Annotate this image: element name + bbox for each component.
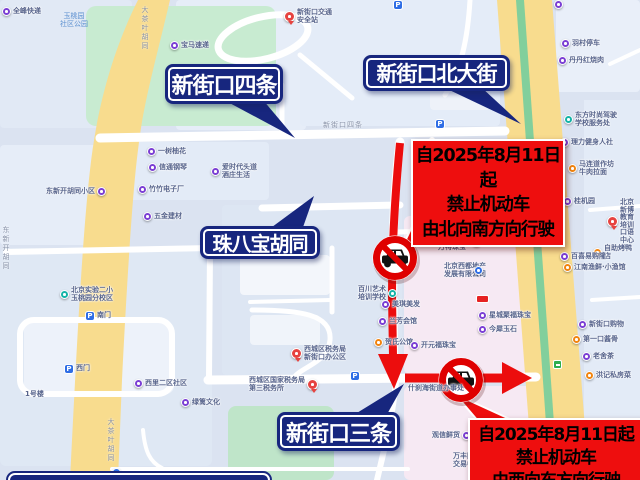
poi-pin-icon[interactable]: [138, 185, 147, 194]
sign-xinjiekou-4th: 新街口四条: [165, 64, 283, 104]
poi-pin-icon[interactable]: [147, 147, 156, 156]
poi-label: 美琪美发: [392, 301, 420, 309]
poi-label: 东新开胡同小区: [46, 188, 95, 196]
poi-label: 第一口酱骨: [583, 336, 618, 344]
poi-marker[interactable]: 一树柚花: [147, 147, 186, 156]
poi-marker[interactable]: 桂机园: [563, 197, 595, 206]
poi-label: 江南渔鲜·小渔馆: [574, 264, 626, 272]
poi-marker[interactable]: 全峰快递: [2, 7, 41, 16]
poi-label: 东方时尚驾驶 学校服务处: [575, 112, 617, 127]
poi-pin-icon[interactable]: [291, 348, 302, 359]
poi-label: 爱时代头道 酒庄生活: [222, 164, 257, 179]
poi-pin-icon[interactable]: [572, 335, 581, 344]
poi-marker[interactable]: 1号楼: [25, 391, 44, 399]
poi-marker[interactable]: 什刹海街道办事处: [408, 385, 464, 393]
bus-stop-icon[interactable]: [553, 360, 562, 369]
poi-label: 西城区国家税务局 第三税务所: [249, 377, 305, 392]
poi-marker[interactable]: 爱时代头道 酒庄生活: [211, 164, 257, 179]
poi-pin-icon[interactable]: [582, 352, 591, 361]
poi-label: 百川艺术 培训学校: [358, 286, 386, 301]
poi-label: 西门: [76, 365, 90, 373]
street-xinjiekou-4th: [100, 131, 505, 138]
poi-marker[interactable]: 百喜易购隆: [560, 252, 606, 261]
poi-marker[interactable]: 西城区国家税务局 第三税务所: [249, 377, 318, 392]
poi-marker[interactable]: 西城区税务局 新街口办公区: [291, 346, 346, 361]
map-screen[interactable]: 玉桃园 社区公园 新街口四条 新街口北大街 珠八宝胡同 新街口三条 自2025年…: [0, 0, 640, 480]
poi-marker[interactable]: 兰芳会馆: [378, 317, 417, 326]
poi-marker[interactable]: P南门: [85, 311, 111, 321]
poi-pin-icon[interactable]: [388, 289, 397, 298]
poi-label: 宝马速递: [181, 42, 209, 50]
poi-label: 桂机园: [574, 198, 595, 206]
poi-label: 西城区税务局 新街口办公区: [304, 346, 346, 361]
poi-marker[interactable]: 今犀玉石: [478, 325, 517, 334]
poi-pin-icon[interactable]: [2, 7, 11, 16]
poi-pin-icon[interactable]: [560, 252, 569, 261]
notice-line: 由西向东方向行驶: [471, 470, 640, 480]
poi-pin-icon[interactable]: [568, 164, 577, 173]
poi-pin-icon[interactable]: [134, 379, 143, 388]
poi-label: 贺氏公馆: [385, 339, 413, 347]
poi-label: 北京新博教育 培训口语中心: [620, 199, 635, 244]
parking-icon[interactable]: P: [64, 364, 74, 374]
poi-marker[interactable]: 新街口购物: [578, 320, 624, 329]
poi-label: 1号楼: [25, 391, 44, 399]
notice-line: 禁止机动车: [414, 193, 562, 218]
poi-marker[interactable]: 竹竹电子厂: [138, 185, 184, 194]
poi-pin-icon[interactable]: [211, 167, 220, 176]
street-zhubabao-hutong: [262, 205, 400, 208]
poi-pin-icon[interactable]: [307, 379, 318, 390]
sign-xinjiekou-3rd: 新街口三条: [277, 412, 400, 451]
poi-marker[interactable]: 新街口交通 安全站: [284, 9, 332, 24]
poi-label: 老舍茶: [593, 353, 614, 361]
poi-pin-icon[interactable]: [476, 295, 489, 303]
street-name-label: 新街口四条: [323, 120, 363, 130]
poi-pin-icon[interactable]: [284, 11, 295, 22]
poi-marker[interactable]: 马连道作坊 牛肉拉面: [568, 161, 614, 176]
poi-label: 北京实验二小 玉桃园分校区: [71, 287, 113, 302]
poi-label: 洪记私房菜: [596, 372, 631, 380]
poi-marker[interactable]: 第一口酱骨: [572, 335, 618, 344]
poi-pin-icon[interactable]: [381, 300, 390, 309]
poi-pin-icon[interactable]: [561, 39, 570, 48]
poi-label: 南门: [97, 312, 111, 320]
poi-marker[interactable]: 丹丹红烧肉: [558, 56, 604, 65]
poi-marker[interactable]: 羽村停车: [561, 39, 600, 48]
street-sign-cutoff: [6, 471, 272, 480]
poi-pin-icon[interactable]: [554, 0, 563, 9]
poi-marker[interactable]: 东方时尚驾驶 学校服务处: [564, 112, 617, 127]
poi-label: 新街口交通 安全站: [297, 9, 332, 24]
poi-pin-icon[interactable]: [558, 56, 567, 65]
poi-pin-icon[interactable]: [585, 371, 594, 380]
poi-label: 星城聚福珠宝: [489, 312, 531, 320]
poi-marker[interactable]: 开元福珠宝: [410, 341, 456, 350]
poi-marker[interactable]: 宝马速递: [170, 41, 209, 50]
notice-no-vehicles-west-east: 自2025年8月11日起 禁止机动车 由西向东方向行驶: [468, 418, 640, 480]
poi-label: 全峰快递: [13, 8, 41, 16]
poi-marker[interactable]: P: [435, 119, 445, 129]
poi-pin-icon[interactable]: [378, 317, 387, 326]
poi-label: 西里二区社区: [145, 380, 187, 388]
poi-marker[interactable]: 五金建材: [143, 212, 182, 221]
parking-icon[interactable]: P: [435, 119, 445, 129]
poi-pin-icon[interactable]: [374, 338, 383, 347]
parking-icon[interactable]: P: [350, 371, 360, 381]
poi-marker[interactable]: 星城聚福珠宝: [478, 311, 531, 320]
parking-icon[interactable]: P: [393, 0, 403, 10]
poi-label: 百喜易购隆: [571, 253, 606, 261]
poi-label: 马连道作坊 牛肉拉面: [579, 161, 614, 176]
poi-marker[interactable]: 东新开胡同小区: [46, 187, 106, 196]
poi-marker[interactable]: 百川艺术 培训学校: [358, 286, 397, 301]
poi-label: 信通钢琴: [159, 164, 187, 172]
poi-pin-icon[interactable]: [478, 311, 487, 320]
poi-pin-icon[interactable]: [410, 341, 419, 350]
poi-marker[interactable]: P西门: [64, 364, 90, 374]
parking-icon[interactable]: P: [85, 311, 95, 321]
poi-marker[interactable]: 北京新博教育 培训口语中心: [607, 199, 635, 244]
poi-marker[interactable]: 美琪美发: [381, 300, 420, 309]
sign-xinjiekou-north-street: 新街口北大街: [363, 55, 510, 91]
poi-pin-icon[interactable]: [478, 325, 487, 334]
poi-marker[interactable]: 绿篱文化: [181, 398, 220, 407]
street-name-label: 东新开胡同: [1, 226, 11, 271]
poi-label: 兰芳会馆: [389, 318, 417, 326]
poi-pin-icon[interactable]: [148, 163, 157, 172]
poi-label: 观信鲜货: [432, 432, 460, 440]
poi-marker[interactable]: 洪记私房菜: [585, 371, 631, 380]
poi-marker[interactable]: 老舍茶: [582, 352, 614, 361]
poi-label: 绿篱文化: [192, 399, 220, 407]
notice-no-vehicles-north-south: 自2025年8月11日起 禁止机动车 由北向南方向行驶: [411, 139, 565, 247]
poi-marker[interactable]: 信通钢琴: [148, 163, 187, 172]
poi-marker[interactable]: 贺氏公馆: [374, 338, 413, 347]
poi-label: 理力健身人社: [571, 139, 613, 147]
street-name-label: 大茶叶胡同: [106, 418, 116, 463]
poi-label: 新街口购物: [589, 321, 624, 329]
poi-marker[interactable]: [554, 0, 563, 9]
notice-line: 自2025年8月11日起: [414, 144, 562, 193]
notice-line: 由北向南方向行驶: [414, 218, 562, 243]
poi-marker[interactable]: P: [393, 0, 403, 10]
notice-line: 禁止机动车: [471, 447, 640, 470]
poi-label: 竹竹电子厂: [149, 186, 184, 194]
poi-label: 自助烤鸭店: [604, 245, 635, 260]
sign-zhubabao-hutong: 珠八宝胡同: [200, 226, 320, 259]
poi-pin-icon[interactable]: [474, 266, 483, 275]
poi-label: 五金建材: [154, 213, 182, 221]
poi-pin-icon[interactable]: [564, 115, 573, 124]
poi-marker[interactable]: 西里二区社区: [134, 379, 187, 388]
poi-label: 什刹海街道办事处: [408, 385, 464, 393]
park-label: 玉桃园 社区公园: [60, 12, 88, 28]
poi-marker[interactable]: 北京实验二小 玉桃园分校区: [60, 287, 113, 302]
poi-marker[interactable]: 江南渔鲜·小渔馆: [563, 263, 626, 272]
poi-label: 今犀玉石: [489, 326, 517, 334]
poi-marker[interactable]: P: [350, 371, 360, 381]
poi-marker[interactable]: 理力健身人社: [560, 138, 613, 147]
poi-pin-icon[interactable]: [607, 216, 618, 227]
poi-marker[interactable]: [474, 266, 483, 275]
poi-pin-icon[interactable]: [97, 187, 106, 196]
poi-marker[interactable]: [476, 295, 489, 303]
poi-label: 丹丹红烧肉: [569, 57, 604, 65]
poi-pin-icon[interactable]: [143, 212, 152, 221]
notice-line: 自2025年8月11日起: [471, 424, 640, 447]
poi-pin-icon[interactable]: [563, 263, 572, 272]
poi-pin-icon[interactable]: [181, 398, 190, 407]
poi-marker[interactable]: 观信鲜货: [432, 431, 471, 440]
poi-marker[interactable]: [553, 360, 562, 369]
poi-pin-icon[interactable]: [60, 290, 69, 299]
street-name-label: 大茶叶胡同: [140, 6, 150, 51]
poi-label: 羽村停车: [572, 40, 600, 48]
poi-pin-icon[interactable]: [170, 41, 179, 50]
poi-label: 一树柚花: [158, 148, 186, 156]
poi-label: 开元福珠宝: [421, 342, 456, 350]
poi-pin-icon[interactable]: [578, 320, 587, 329]
